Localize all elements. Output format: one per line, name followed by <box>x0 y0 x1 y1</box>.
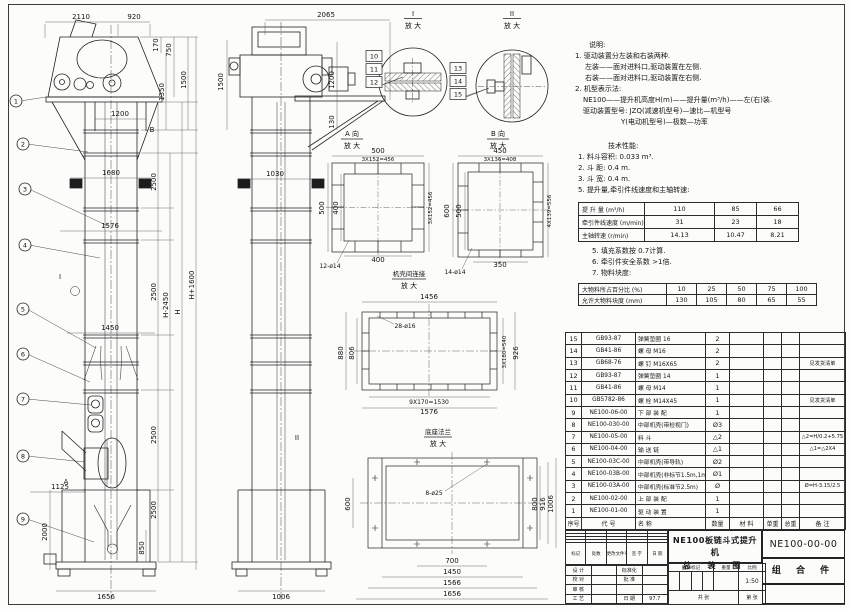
cell <box>800 382 846 394</box>
cell: 见发货清单 <box>800 394 846 406</box>
cell <box>764 456 782 468</box>
cell <box>800 369 846 381</box>
dim-label: 2000 <box>41 523 49 541</box>
cell: 2 <box>706 345 730 357</box>
detail-view-ii <box>466 19 548 123</box>
cell <box>764 406 782 418</box>
cell <box>764 345 782 357</box>
cell: 110 <box>645 203 715 216</box>
cell: Ø1 <box>706 468 730 480</box>
cell <box>782 443 800 455</box>
title-block-left: 标记处数更改文件号签 字日 期 设 计标准化校 对批 准审 核工 艺日 期97.… <box>565 530 668 604</box>
view-a-flange <box>326 156 430 263</box>
cell <box>730 493 764 505</box>
cell <box>782 369 800 381</box>
cell: 代 号 <box>582 517 636 529</box>
cell <box>800 505 846 517</box>
dim-label: 12-ø14 <box>319 263 340 270</box>
dim-label: 机壳间连接 <box>393 269 426 278</box>
dim-label: B 向 <box>491 129 505 138</box>
dim-label: 1200 <box>328 71 336 89</box>
cell <box>800 345 846 357</box>
cell <box>782 345 800 357</box>
sheet-total-label: 共 张 <box>669 591 739 605</box>
cell <box>642 575 668 585</box>
cell <box>764 468 782 480</box>
note-line: 右装——面对进料口,驱动装置在右侧. <box>575 73 847 84</box>
cell <box>764 431 782 443</box>
cell: NE100-03B-00 <box>582 468 636 480</box>
dim-label: 806 <box>348 346 356 360</box>
cell <box>730 431 764 443</box>
cell: △2=H/0.2+5.75 <box>800 431 846 443</box>
note-line: 2. 斗 距: 0.4 m. <box>578 163 848 174</box>
cell: GB93-87 <box>582 369 636 381</box>
dim-label: 28-ø16 <box>394 323 415 330</box>
dim-label: 1576 <box>101 222 119 230</box>
note-line: 1. 驱动装置分左装和右装两种. <box>575 51 847 62</box>
empty-box <box>762 584 845 604</box>
cell: 校 对 <box>566 575 592 585</box>
cell <box>730 357 764 369</box>
cell: 单重 <box>764 517 782 529</box>
dim-label: 2110 <box>72 13 90 21</box>
cell: 80 <box>727 295 757 306</box>
dim-label: II <box>295 434 299 442</box>
cell: 批 准 <box>617 575 643 585</box>
note-line: 左装——面对进料口,驱动装置在左侧. <box>575 62 847 73</box>
cell: 12 <box>566 369 582 381</box>
cell: 主轴转速 (r/min) <box>579 229 645 242</box>
cell <box>730 406 764 418</box>
ref-number: 12 <box>370 78 378 86</box>
dim-label: 450 <box>493 147 506 155</box>
balloon-number: 9 <box>21 515 25 523</box>
cell: NE100-03A-00 <box>582 480 636 492</box>
cell: Ø3 <box>706 419 730 431</box>
cell: 签 字 <box>627 543 647 565</box>
front-view <box>44 20 162 600</box>
cell: GB68-76 <box>582 357 636 369</box>
cell: 提 升 量 (m³/h) <box>579 203 645 216</box>
cell: 中部机壳(带导轨) <box>636 456 706 468</box>
cell <box>591 566 617 576</box>
dim-label: 1456 <box>420 293 438 301</box>
cell <box>730 456 764 468</box>
cell <box>730 419 764 431</box>
cell: 1 <box>706 505 730 517</box>
dim-label: 2500 <box>150 283 158 301</box>
cell: 设 计 <box>566 566 592 576</box>
cell: 见发货清单 <box>800 357 846 369</box>
dim-label: 400 <box>371 256 384 264</box>
cell: 中部机壳(标准节2.5m) <box>636 480 706 492</box>
notes-section: 说明: 1. 驱动装置分左装和右装两种.左装——面对进料口,驱动装置在左侧.右装… <box>575 40 847 128</box>
mark-cells <box>669 572 714 591</box>
cell <box>764 357 782 369</box>
cell <box>730 480 764 492</box>
cell: 18 <box>757 216 799 229</box>
cell: 数量 <box>706 517 730 529</box>
dim-label: 3X180=540 <box>502 335 508 368</box>
cell: 螺 钉 M16X65 <box>636 357 706 369</box>
cell: 5 <box>566 456 582 468</box>
dim-label: 底座法兰 <box>425 427 452 436</box>
view-b-flange <box>452 156 549 269</box>
note-line: 驱动装置型号: JZQ(减速机型号)—速比—机型号 <box>575 106 847 117</box>
dim-label: 750 <box>165 43 173 56</box>
dim-label: 放 大 <box>405 21 421 30</box>
note-line: 6. 牵引件安全系数 >1倍. <box>592 257 842 268</box>
note-line: NE100——提升机高度H(m)——提升量(m³/h)——左(右)装. <box>575 95 847 106</box>
dim-label: 800 <box>531 497 539 510</box>
cell <box>800 468 846 480</box>
cell <box>782 493 800 505</box>
cell: GB5782-86 <box>582 394 636 406</box>
dim-label: 放 大 <box>504 21 520 30</box>
cell: 允许大物料块度 (mm) <box>579 295 667 306</box>
dim-label: II <box>510 10 514 18</box>
cell: 66 <box>757 203 799 216</box>
cell <box>591 594 617 604</box>
dim-label: 1500 <box>180 71 188 89</box>
note-line: 5. 填充系数按 0.7计算. <box>592 246 842 257</box>
cell: 标记 <box>566 543 586 565</box>
dim-label: B <box>150 126 155 134</box>
cell <box>642 566 668 576</box>
dim-label: 3X136=408 <box>484 157 517 163</box>
cell: 11 <box>566 382 582 394</box>
cell <box>800 456 846 468</box>
dim-label: 放 大 <box>401 281 417 290</box>
dim-label: 1006 <box>272 593 290 601</box>
cell: 标准化 <box>617 566 643 576</box>
tech-title: 技术性能: <box>578 141 848 152</box>
dim-label: 1576 <box>420 408 438 416</box>
balloon-number: 8 <box>21 452 25 460</box>
cell: 9 <box>566 406 582 418</box>
cell: 105 <box>697 295 727 306</box>
dim-label: 1656 <box>443 590 461 598</box>
cell: 上 部 装 配 <box>636 493 706 505</box>
cell: NE100-04-00 <box>582 443 636 455</box>
cell: 1 <box>706 382 730 394</box>
cell: 螺 母 M14 <box>636 382 706 394</box>
dim-label: 880 <box>337 346 345 359</box>
cell: 2 <box>706 357 730 369</box>
drawing-title-box: NE100板链斗式提升机 总 装 图 <box>668 530 762 563</box>
cell: 螺 母 M16 <box>636 345 706 357</box>
dim-label: 350 <box>493 261 506 269</box>
cell: NE100-030-00 <box>582 419 636 431</box>
dim-label: 1006 <box>547 495 555 513</box>
note-line: 1. 料斗容积: 0.033 m³. <box>578 152 848 163</box>
note-line: 2. 机型表示法: <box>575 84 847 95</box>
dim-label: 916 <box>539 497 547 511</box>
cell <box>730 333 764 345</box>
cell: Ø2 <box>706 456 730 468</box>
ref-number: 13 <box>454 64 462 72</box>
cell: 大物料所占百分比 (%) <box>579 284 667 295</box>
note-line: Y(电动机型号)—极数—功率 <box>575 117 847 128</box>
cell: 弹簧垫圈 16 <box>636 333 706 345</box>
dim-label: 1450 <box>101 324 119 332</box>
dim-label: 1200 <box>111 110 129 118</box>
cell: △1 <box>706 443 730 455</box>
cell <box>782 406 800 418</box>
cell <box>730 394 764 406</box>
dim-label: 放 大 <box>430 439 446 448</box>
cell: 13 <box>566 357 582 369</box>
cell <box>782 357 800 369</box>
cell: 螺 栓 M14X45 <box>636 394 706 406</box>
balloon-callouts: 123456789 <box>10 95 108 542</box>
balloon-number: 3 <box>23 185 27 193</box>
cell: 8 <box>566 419 582 431</box>
cell <box>782 419 800 431</box>
cell: 85 <box>715 203 757 216</box>
cell <box>782 456 800 468</box>
dim-label: 1566 <box>443 579 461 587</box>
dim-label: 600 <box>443 204 451 217</box>
dim-label: 14-ø14 <box>444 269 465 276</box>
cell: 14 <box>566 345 582 357</box>
dim-label: 500 <box>318 201 326 214</box>
dim-label: H <box>174 309 182 314</box>
title-block-right: NE100-00-00 组 合 件 <box>762 530 845 604</box>
notes-title: 说明: <box>575 40 847 51</box>
cell: 料 斗 <box>636 431 706 443</box>
cell <box>730 468 764 480</box>
material-size-table: 大物料所占百分比 (%)10255075100允许大物料块度 (mm)13010… <box>578 283 817 306</box>
cell: 更改文件号 <box>606 543 626 565</box>
cell: 97.7 <box>642 594 668 604</box>
cell <box>764 480 782 492</box>
cell: 1 <box>706 406 730 418</box>
base-flange-detail <box>353 452 556 599</box>
cell <box>617 585 643 595</box>
note-line: 5. 提升量,牵引件线速度和主轴转速: <box>578 185 848 196</box>
cell <box>730 505 764 517</box>
cell: 1 <box>706 369 730 381</box>
cell: 2 <box>566 493 582 505</box>
cell: 1 <box>566 505 582 517</box>
dim-label: 3X152=456 <box>428 191 434 224</box>
cell <box>730 443 764 455</box>
dim-label: 170 <box>152 38 160 51</box>
cell: 材 料 <box>730 517 764 529</box>
title-block-center: NE100板链斗式提升机 总 装 图 图样标记 重量 比例 1:50 共 张 第… <box>668 530 762 604</box>
cell <box>782 394 800 406</box>
cell: 2 <box>706 333 730 345</box>
dim-label: 9X170=1530 <box>409 399 449 406</box>
cell: 备 注 <box>800 517 846 529</box>
cell <box>782 333 800 345</box>
cell <box>800 493 846 505</box>
cell: 15 <box>566 333 582 345</box>
part-type: 组 合 件 <box>762 558 845 584</box>
cell <box>782 431 800 443</box>
dim-label: 500 <box>371 147 384 155</box>
dim-label: I <box>412 10 414 18</box>
cell <box>782 480 800 492</box>
dim-label: 1450 <box>443 568 461 576</box>
cell <box>764 369 782 381</box>
cell: 65 <box>757 295 787 306</box>
detail-view-i <box>379 19 447 117</box>
cell: △2 <box>706 431 730 443</box>
cell: Ø <box>706 480 730 492</box>
dim-label: 2500 <box>150 173 158 191</box>
capacity-speed-table: 提 升 量 (m³/h)1108566牵引件线速度 (m/min)312318主… <box>578 202 799 242</box>
balloon-number: 7 <box>21 395 25 403</box>
cell: 3 <box>566 480 582 492</box>
tech-notes-mid: 5. 填充系数按 0.7计算.6. 牵引件安全系数 >1倍.7. 物料块度: <box>592 246 842 279</box>
cell: 6 <box>566 443 582 455</box>
dim-label: 920 <box>127 13 140 21</box>
cell <box>764 382 782 394</box>
dim-label: 1350 <box>158 83 166 101</box>
cell: 100 <box>787 284 817 295</box>
cell <box>800 406 846 418</box>
cell: 31 <box>645 216 715 229</box>
cell: 处数 <box>586 543 606 565</box>
cell: GB41-86 <box>582 345 636 357</box>
dim-label: I <box>59 273 61 281</box>
drawing-number: NE100-00-00 <box>762 530 845 558</box>
cell: 55 <box>787 295 817 306</box>
balloon-number: 6 <box>21 350 25 358</box>
dim-label: A 向 <box>345 129 359 138</box>
cell <box>782 505 800 517</box>
cell: 日 期 <box>647 543 667 565</box>
cell: 50 <box>727 284 757 295</box>
ref-number: 14 <box>454 77 462 85</box>
dim-label: 2500 <box>150 501 158 519</box>
cell <box>591 575 617 585</box>
cell: 10.47 <box>715 229 757 242</box>
cell: 工 艺 <box>566 594 592 604</box>
cell: NE100-05-00 <box>582 431 636 443</box>
cell: 日 期 <box>617 594 643 604</box>
cell <box>800 419 846 431</box>
dim-label: 1030 <box>266 170 284 178</box>
dim-label: 1680 <box>102 169 120 177</box>
dim-label: H-2450 <box>162 292 170 318</box>
dim-label: H+1600 <box>188 271 196 300</box>
cell: 75 <box>757 284 787 295</box>
cell <box>782 382 800 394</box>
cell <box>730 369 764 381</box>
drawing-sheet: 123456789 101112131415 21109201707501350… <box>0 0 850 609</box>
cell: 1 <box>706 394 730 406</box>
dim-label: 500 <box>455 204 463 217</box>
cell <box>591 585 617 595</box>
cell: 名 称 <box>636 517 706 529</box>
dim-label: 放 大 <box>344 141 360 150</box>
cell: NE100-03C-00 <box>582 456 636 468</box>
balloon-number: 4 <box>23 241 27 249</box>
cell: 中部机壳(带检视门) <box>636 419 706 431</box>
cell: GB41-86 <box>582 382 636 394</box>
ref-number: 15 <box>454 90 462 98</box>
cell: NE100-02-00 <box>582 493 636 505</box>
cell: NE100-01-00 <box>582 505 636 517</box>
drawing-title: NE100板链斗式提升机 <box>669 534 761 558</box>
cell <box>764 443 782 455</box>
cell <box>764 505 782 517</box>
note-line: 3. 斗 宽: 0.4 m. <box>578 174 848 185</box>
dim-label: 400 <box>332 201 340 214</box>
note-line: 7. 物料块度: <box>592 268 842 279</box>
dim-label: 4X139=556 <box>547 194 553 227</box>
dim-label: 130 <box>328 115 336 128</box>
cell: 中部机壳(非标节1.5m,1m) <box>636 468 706 480</box>
dim-label: 8-ø25 <box>425 490 442 497</box>
casing-flange-detail <box>346 302 515 408</box>
cell: 总重 <box>782 517 800 529</box>
dim-label: 600 <box>344 497 352 510</box>
cell <box>730 382 764 394</box>
dim-label: 700 <box>445 557 458 565</box>
side-view <box>229 22 385 600</box>
cell <box>764 394 782 406</box>
ref-number: 10 <box>370 52 378 60</box>
dim-label: 2500 <box>150 426 158 444</box>
revision-table: 标记处数更改文件号签 字日 期 <box>565 530 668 565</box>
cell: 序号 <box>566 517 582 529</box>
cell: 1 <box>706 493 730 505</box>
cell: 7 <box>566 431 582 443</box>
cell: 审 核 <box>566 585 592 595</box>
cell: NE100-06-00 <box>582 406 636 418</box>
ref-number: 11 <box>370 65 378 73</box>
cell: 10 <box>566 394 582 406</box>
cell <box>764 419 782 431</box>
dim-label: 1500 <box>217 73 225 91</box>
cell <box>800 333 846 345</box>
cell: 23 <box>715 216 757 229</box>
balloon-number: 1 <box>14 97 18 105</box>
cell: 130 <box>667 295 697 306</box>
cell: 4 <box>566 468 582 480</box>
dim-label: 850 <box>138 541 146 554</box>
dim-label: 2065 <box>317 11 335 19</box>
dim-label: 1656 <box>97 593 115 601</box>
cell <box>730 345 764 357</box>
cell: 牵引件线速度 (m/min) <box>579 216 645 229</box>
cell: 下 部 装 配 <box>636 406 706 418</box>
cell <box>764 333 782 345</box>
signature-table: 设 计标准化校 对批 准审 核工 艺日 期97.7 <box>565 565 668 604</box>
cell: 25 <box>697 284 727 295</box>
dim-label: 926 <box>512 346 520 360</box>
balloon-number: 2 <box>21 140 25 148</box>
cell <box>764 493 782 505</box>
weight-cell <box>714 572 739 591</box>
balloon-number: 5 <box>21 305 25 313</box>
cell: 14.13 <box>645 229 715 242</box>
dim-label: 3X152=456 <box>362 157 395 163</box>
cell: 弹簧垫圈 14 <box>636 369 706 381</box>
cell <box>642 585 668 595</box>
cell <box>782 468 800 480</box>
cell: 10 <box>667 284 697 295</box>
cell: 驱 动 装 置 <box>636 505 706 517</box>
cell: 输 送 链 <box>636 443 706 455</box>
cell: Ø=H-3.15/2.5 <box>800 480 846 492</box>
parts-list: 15GB93-87弹簧垫圈 16214GB41-86螺 母 M16213GB68… <box>565 332 846 530</box>
